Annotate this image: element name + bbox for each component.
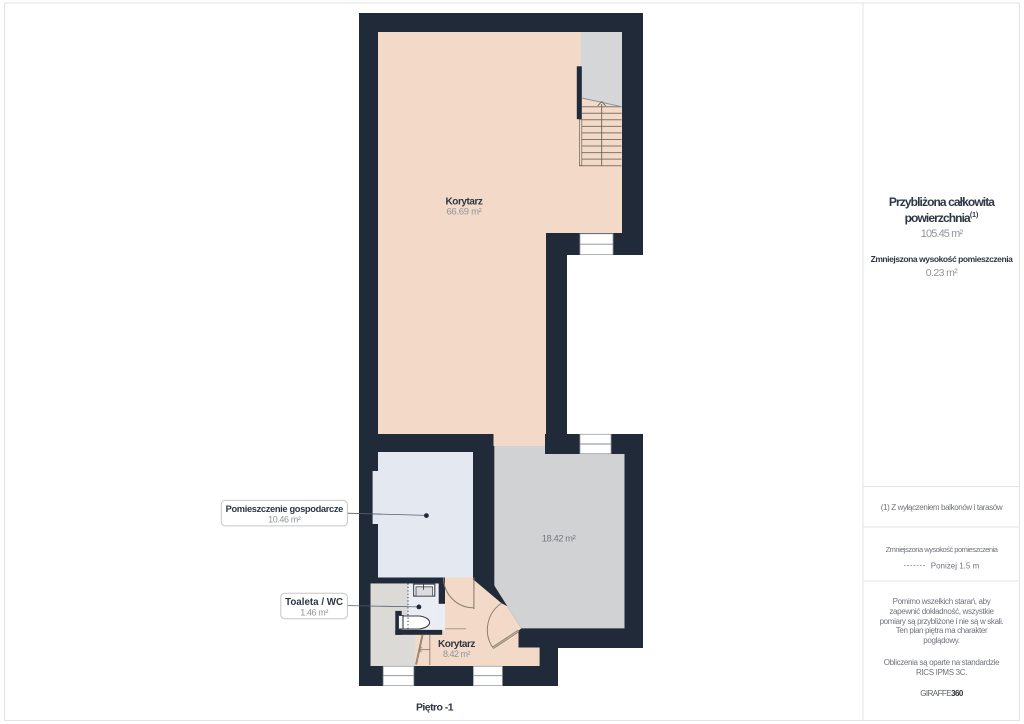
svg-text:Pomieszczenie gospodarcze: Pomieszczenie gospodarcze [226, 504, 343, 514]
svg-text:Piętro -1: Piętro -1 [416, 702, 454, 714]
svg-text:18.42 m²: 18.42 m² [542, 534, 576, 545]
svg-text:1.46 m²: 1.46 m² [300, 607, 328, 617]
svg-text:8.42 m²: 8.42 m² [443, 649, 471, 659]
svg-text:10.46 m²: 10.46 m² [268, 515, 301, 525]
svg-text:Toaleta / WC: Toaleta / WC [285, 597, 343, 608]
svg-text:66.69 m²: 66.69 m² [446, 207, 481, 218]
